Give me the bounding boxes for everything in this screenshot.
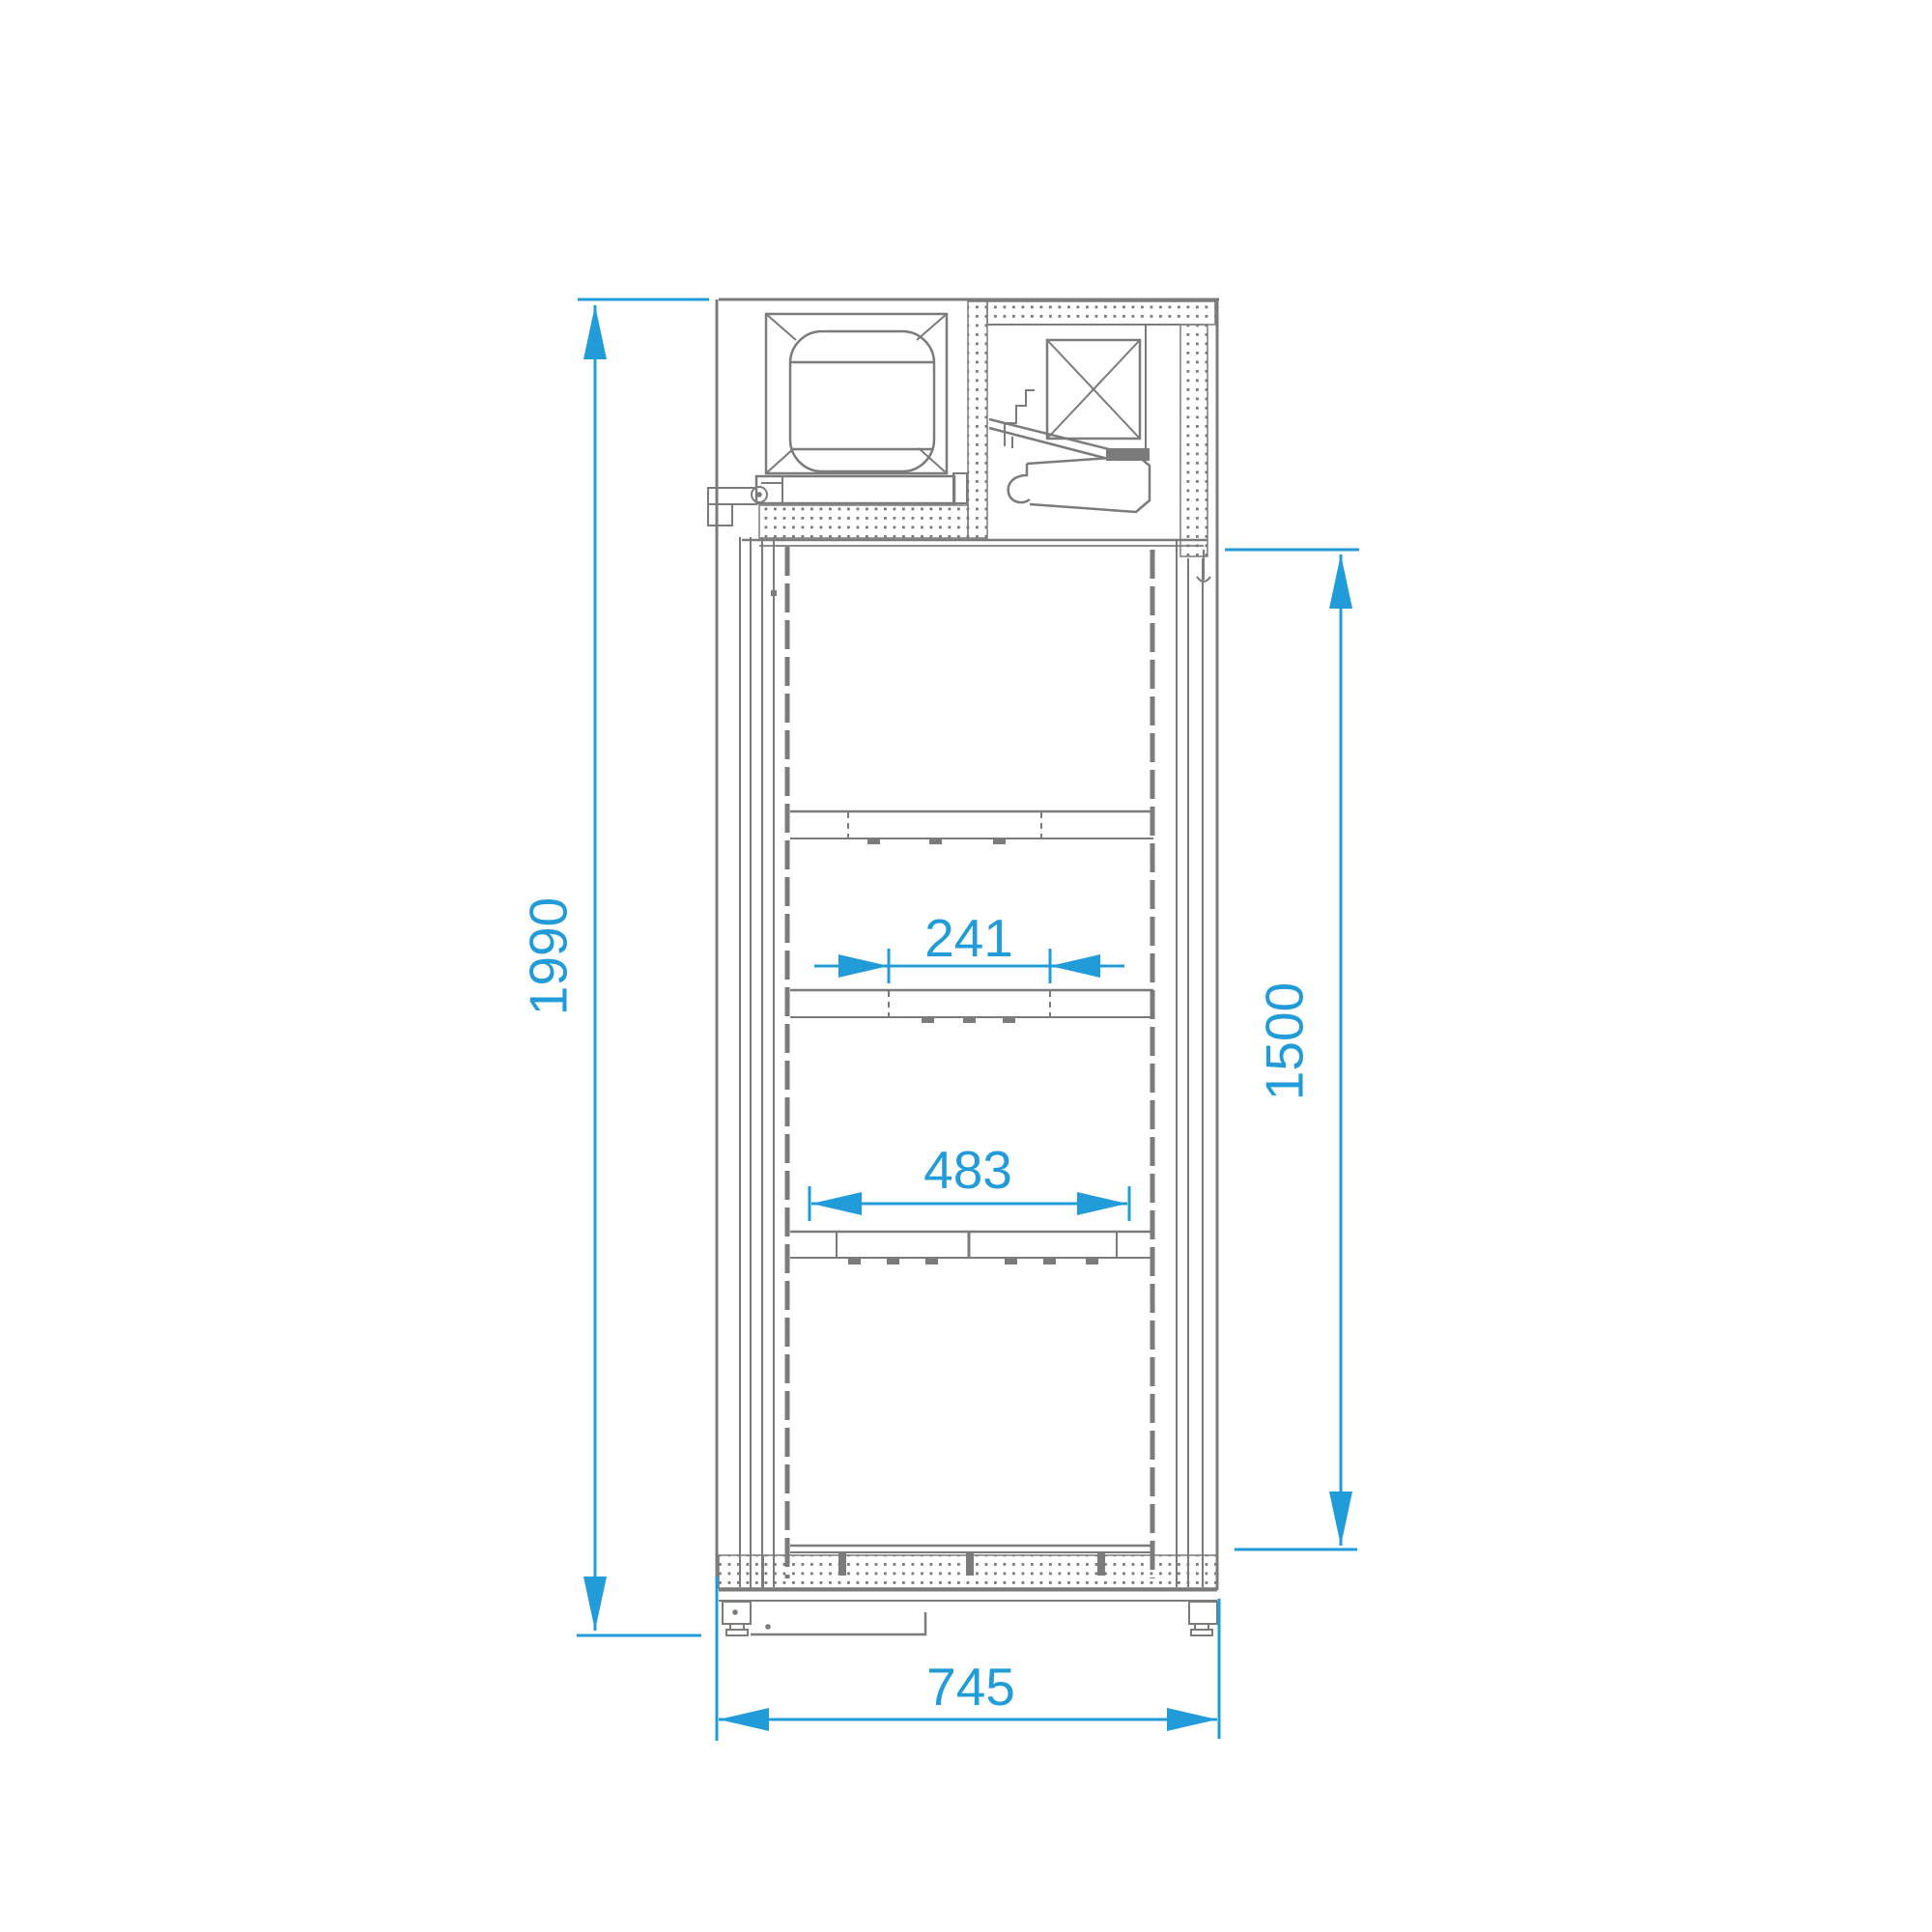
insulation-right-column	[1180, 325, 1207, 556]
dimension-label-upper-shelf-clear: 241	[924, 908, 1013, 968]
dimension-lower-shelf-width: 483	[810, 1140, 1129, 1221]
right-wall-section	[1152, 541, 1203, 1587]
drain-pan	[989, 419, 1150, 512]
compressor-base-plate	[756, 473, 967, 503]
drip-edge	[751, 1612, 925, 1634]
insulation-ceiling-band	[759, 505, 968, 538]
left-foot	[723, 1602, 751, 1635]
dimension-interior-height: 1500	[1225, 550, 1359, 1549]
cavity-ceiling	[742, 540, 1210, 582]
dimension-overall-height: 1990	[519, 299, 709, 1635]
fan-shroud-box	[766, 314, 947, 473]
machine-compartment	[708, 314, 1210, 582]
door-section	[740, 537, 787, 1587]
shelf-3	[790, 1232, 1153, 1264]
drawing-canvas: 1990 1500 241 483 745	[0, 0, 1932, 1932]
shelf-1	[790, 811, 1153, 844]
dimension-label-overall-height: 1990	[519, 897, 579, 1015]
insulation-top-band	[987, 301, 1215, 325]
right-foot	[1189, 1602, 1217, 1635]
door-screw	[771, 590, 777, 596]
cabinet-section-drawing: 1990 1500 241 483 745	[0, 0, 1932, 1932]
dimension-upper-shelf-clear: 241	[814, 908, 1124, 983]
shelf-2	[790, 990, 1153, 1023]
dimension-label-lower-shelf-width: 483	[923, 1140, 1012, 1200]
dimension-label-interior-height: 1500	[1255, 982, 1315, 1100]
insulation-middle-strip	[968, 301, 987, 538]
dimension-label-overall-depth: 745	[926, 1657, 1015, 1717]
condenser-box	[987, 325, 1180, 450]
